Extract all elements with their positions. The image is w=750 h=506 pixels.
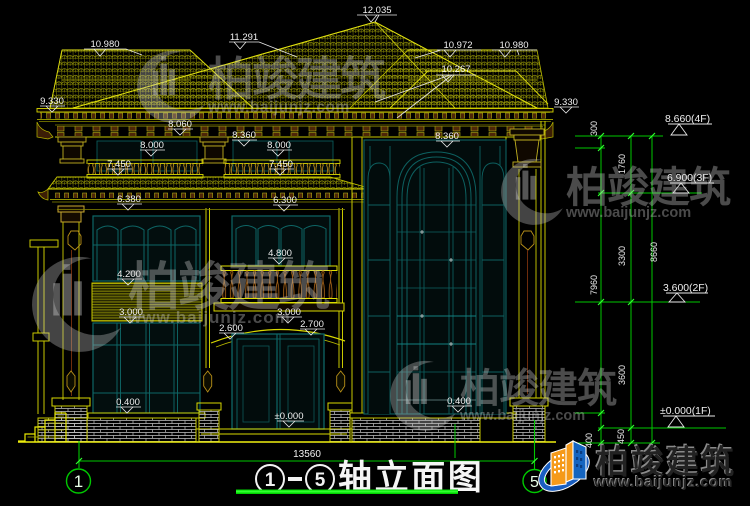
svg-text:3.600(2F): 3.600(2F) bbox=[663, 283, 708, 294]
svg-text:8.000: 8.000 bbox=[267, 140, 291, 151]
svg-text:柏竣建筑: 柏竣建筑 bbox=[460, 367, 617, 411]
svg-text:4.800: 4.800 bbox=[268, 248, 292, 259]
svg-text:2.700: 2.700 bbox=[300, 319, 324, 330]
svg-text:8.660(4F): 8.660(4F) bbox=[665, 114, 710, 125]
svg-text:1: 1 bbox=[265, 470, 276, 491]
svg-text:www.baijunjz.com: www.baijunjz.com bbox=[207, 99, 350, 116]
svg-text:6.300: 6.300 bbox=[273, 195, 297, 206]
svg-text:10.980: 10.980 bbox=[90, 39, 119, 50]
svg-text:10.972: 10.972 bbox=[443, 40, 472, 51]
svg-text:柏竣建筑: 柏竣建筑 bbox=[208, 53, 386, 105]
svg-text:柏竣建筑: 柏竣建筑 bbox=[566, 164, 731, 211]
svg-text:10.980: 10.980 bbox=[499, 40, 528, 51]
svg-text:www.baijunjz.com: www.baijunjz.com bbox=[459, 408, 585, 424]
svg-text:5: 5 bbox=[315, 470, 326, 491]
svg-text:12.035: 12.035 bbox=[362, 5, 391, 16]
svg-text:9.330: 9.330 bbox=[40, 96, 64, 107]
svg-text:www.baijunjz.com: www.baijunjz.com bbox=[565, 205, 691, 221]
svg-text:±0.000: ±0.000 bbox=[275, 411, 304, 422]
svg-text:8.360: 8.360 bbox=[435, 131, 459, 142]
svg-text:300: 300 bbox=[589, 121, 599, 136]
svg-text:www.baijunjz.com: www.baijunjz.com bbox=[127, 308, 291, 327]
svg-text:1: 1 bbox=[74, 472, 83, 491]
svg-text:7960: 7960 bbox=[589, 275, 599, 295]
svg-text:3300: 3300 bbox=[617, 246, 627, 266]
svg-text:8.000: 8.000 bbox=[140, 140, 164, 151]
svg-text:7.450: 7.450 bbox=[269, 159, 293, 170]
svg-text:8660: 8660 bbox=[649, 242, 659, 262]
svg-text:5: 5 bbox=[530, 474, 539, 491]
svg-text:0.400: 0.400 bbox=[116, 397, 140, 408]
svg-text:3600: 3600 bbox=[617, 365, 627, 385]
svg-text:8.360: 8.360 bbox=[232, 130, 256, 141]
svg-text:9.330: 9.330 bbox=[554, 97, 578, 108]
svg-text:13560: 13560 bbox=[293, 449, 321, 460]
svg-text:400: 400 bbox=[584, 433, 594, 448]
svg-text:www.baijunjz.com: www.baijunjz.com bbox=[593, 474, 733, 491]
svg-text:10.267: 10.267 bbox=[441, 64, 470, 75]
svg-text:±0.000(1F): ±0.000(1F) bbox=[660, 406, 711, 417]
svg-text:11.291: 11.291 bbox=[230, 32, 258, 43]
svg-text:7.450: 7.450 bbox=[107, 159, 131, 170]
svg-text:6.380: 6.380 bbox=[117, 194, 141, 205]
